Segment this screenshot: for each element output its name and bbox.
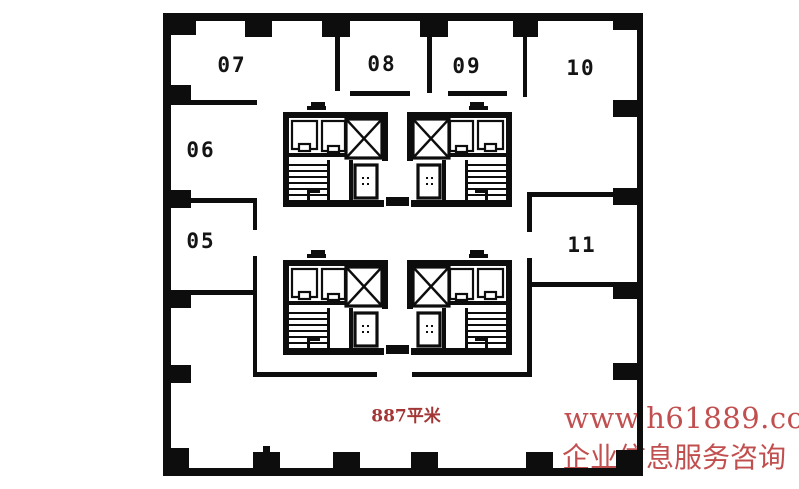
unit-label-05: 05 — [186, 229, 215, 253]
service-core-lower-left — [283, 250, 399, 355]
service-core-upper-right — [396, 102, 512, 207]
floor-plan-canvas: www.h61889.com 企业信息服务咨询 — [0, 0, 799, 489]
service-core-upper-left — [283, 102, 399, 207]
unit-label-08: 08 — [367, 52, 396, 76]
area-label: 887平米 — [371, 402, 441, 427]
unit-label-11: 11 — [567, 233, 596, 257]
unit-label-07: 07 — [217, 53, 246, 77]
unit-label-10: 10 — [566, 56, 595, 80]
service-core-lower-right — [396, 250, 512, 355]
unit-label-09: 09 — [452, 54, 481, 78]
unit-label-06: 06 — [186, 138, 215, 162]
